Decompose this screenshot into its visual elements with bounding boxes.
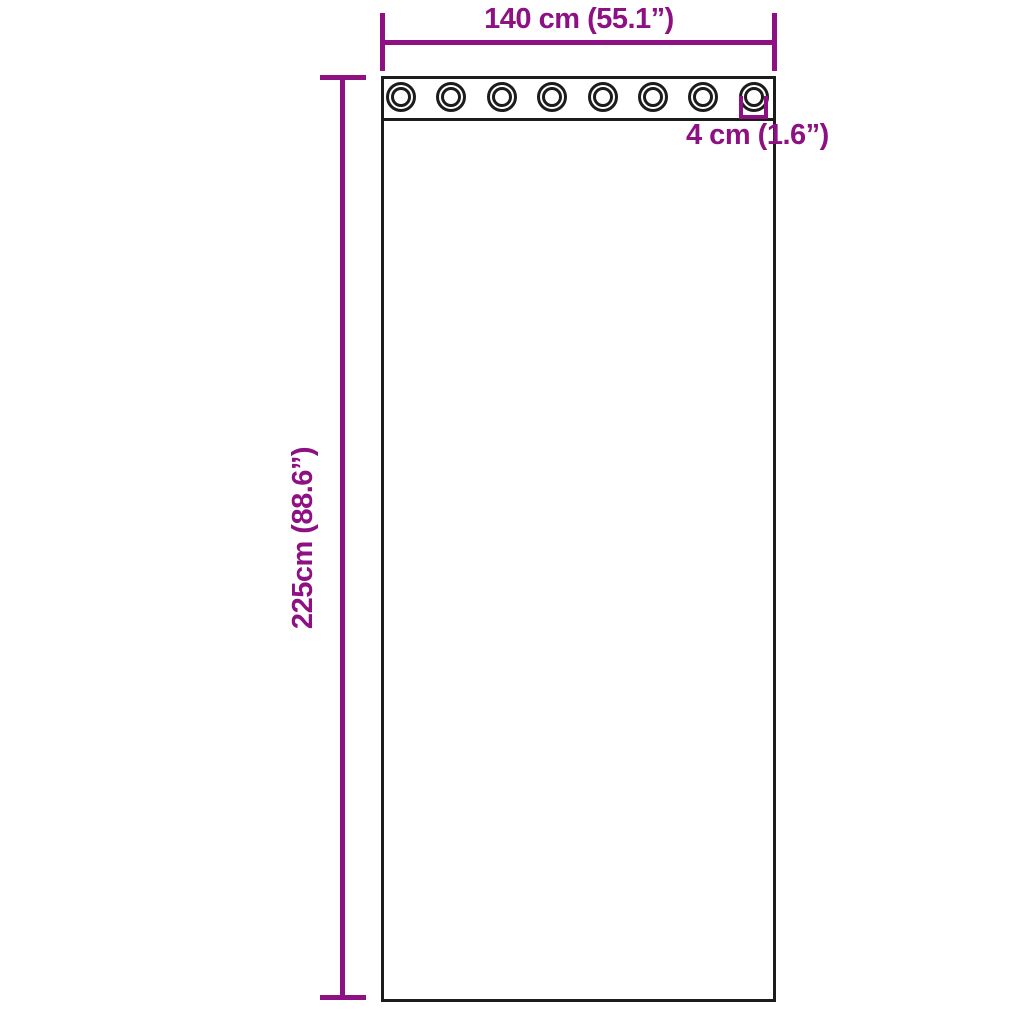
width-dimension-line — [383, 40, 775, 45]
grommet-band — [384, 79, 773, 121]
grommet — [386, 82, 416, 112]
height-dimension-label: 225cm (88.6”) — [288, 447, 318, 629]
grommet — [436, 82, 466, 112]
grommet-hole — [441, 87, 461, 107]
grommet-hole — [593, 87, 613, 107]
curtain-panel — [381, 76, 776, 1002]
height-dimension-cap-top — [320, 75, 366, 80]
grommet — [688, 82, 718, 112]
grommet-hole — [492, 87, 512, 107]
grommet-hole — [744, 87, 764, 107]
diagram-canvas: 140 cm (55.1”) 225cm (88.6”) 4 cm (1.6”) — [0, 0, 1024, 1024]
grommet — [537, 82, 567, 112]
grommet — [487, 82, 517, 112]
grommet-hole — [693, 87, 713, 107]
grommet — [588, 82, 618, 112]
grommet-hole — [391, 87, 411, 107]
grommet — [638, 82, 668, 112]
width-dimension-label: 140 cm (55.1”) — [383, 4, 775, 34]
grommet-hole — [643, 87, 663, 107]
grommet-diameter-label: 4 cm (1.6”) — [686, 120, 829, 150]
height-dimension-line — [340, 75, 345, 1000]
height-dimension-cap-bottom — [320, 995, 366, 1000]
grommet-hole — [542, 87, 562, 107]
